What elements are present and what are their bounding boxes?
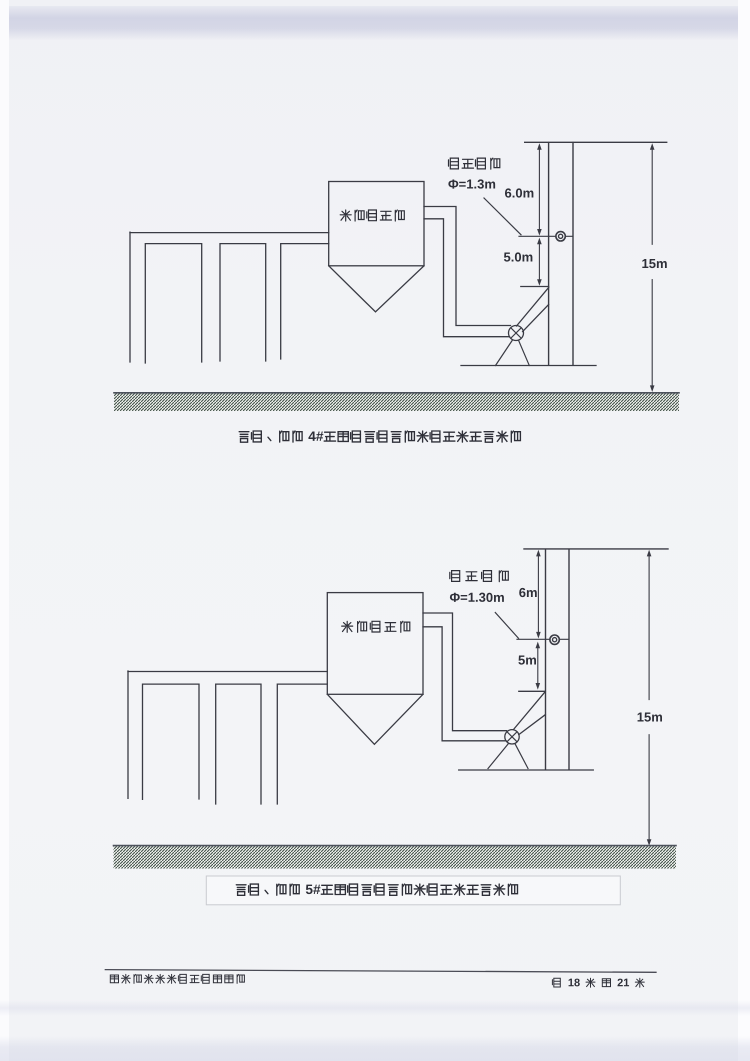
svg-text:15m: 15m (641, 256, 667, 271)
svg-text:6m: 6m (519, 585, 538, 600)
svg-text:Φ=1.30m: Φ=1.30m (449, 590, 504, 605)
svg-text:21: 21 (617, 977, 629, 989)
svg-text:5#: 5# (305, 882, 321, 897)
svg-text:4#: 4# (308, 429, 324, 444)
svg-text:15m: 15m (637, 710, 663, 725)
svg-text:5.0m: 5.0m (503, 250, 533, 265)
svg-text:5m: 5m (518, 653, 537, 668)
svg-text:Φ=1.3m: Φ=1.3m (448, 177, 496, 192)
svg-text:18: 18 (568, 977, 580, 989)
svg-text:6.0m: 6.0m (504, 186, 534, 201)
